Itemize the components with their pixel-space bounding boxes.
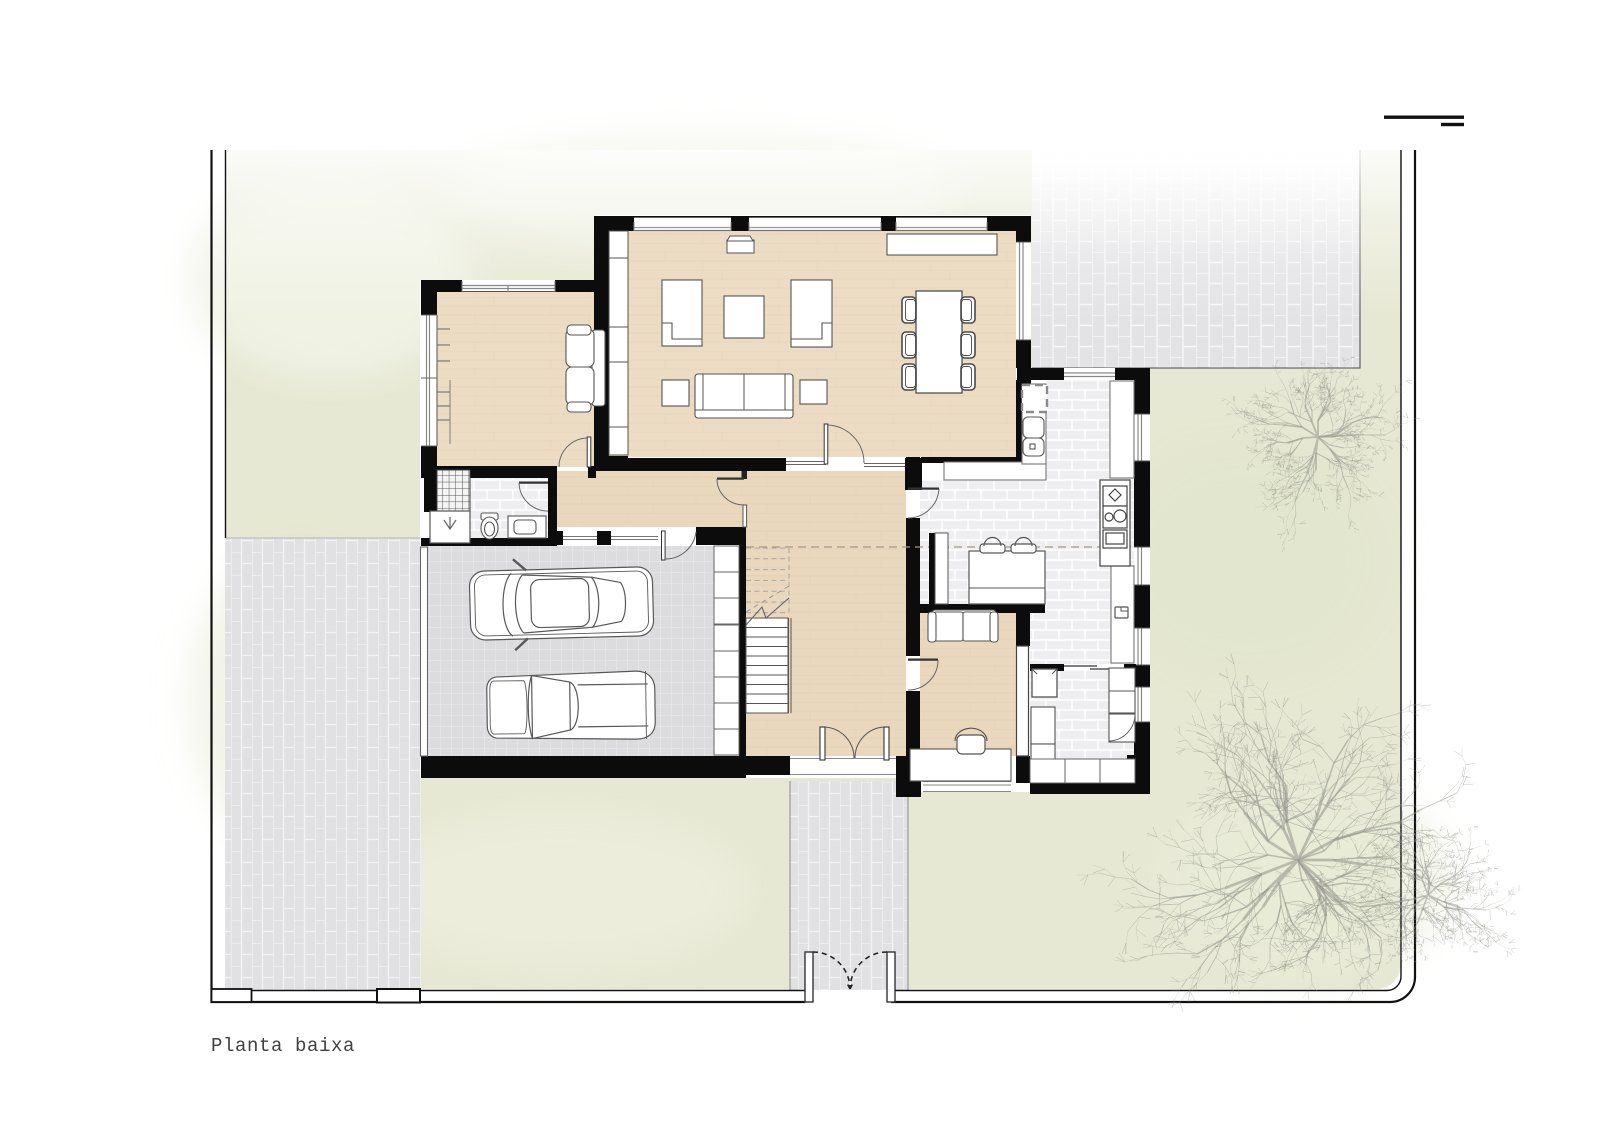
svg-text:Planta baixa: Planta baixa	[211, 1035, 355, 1057]
